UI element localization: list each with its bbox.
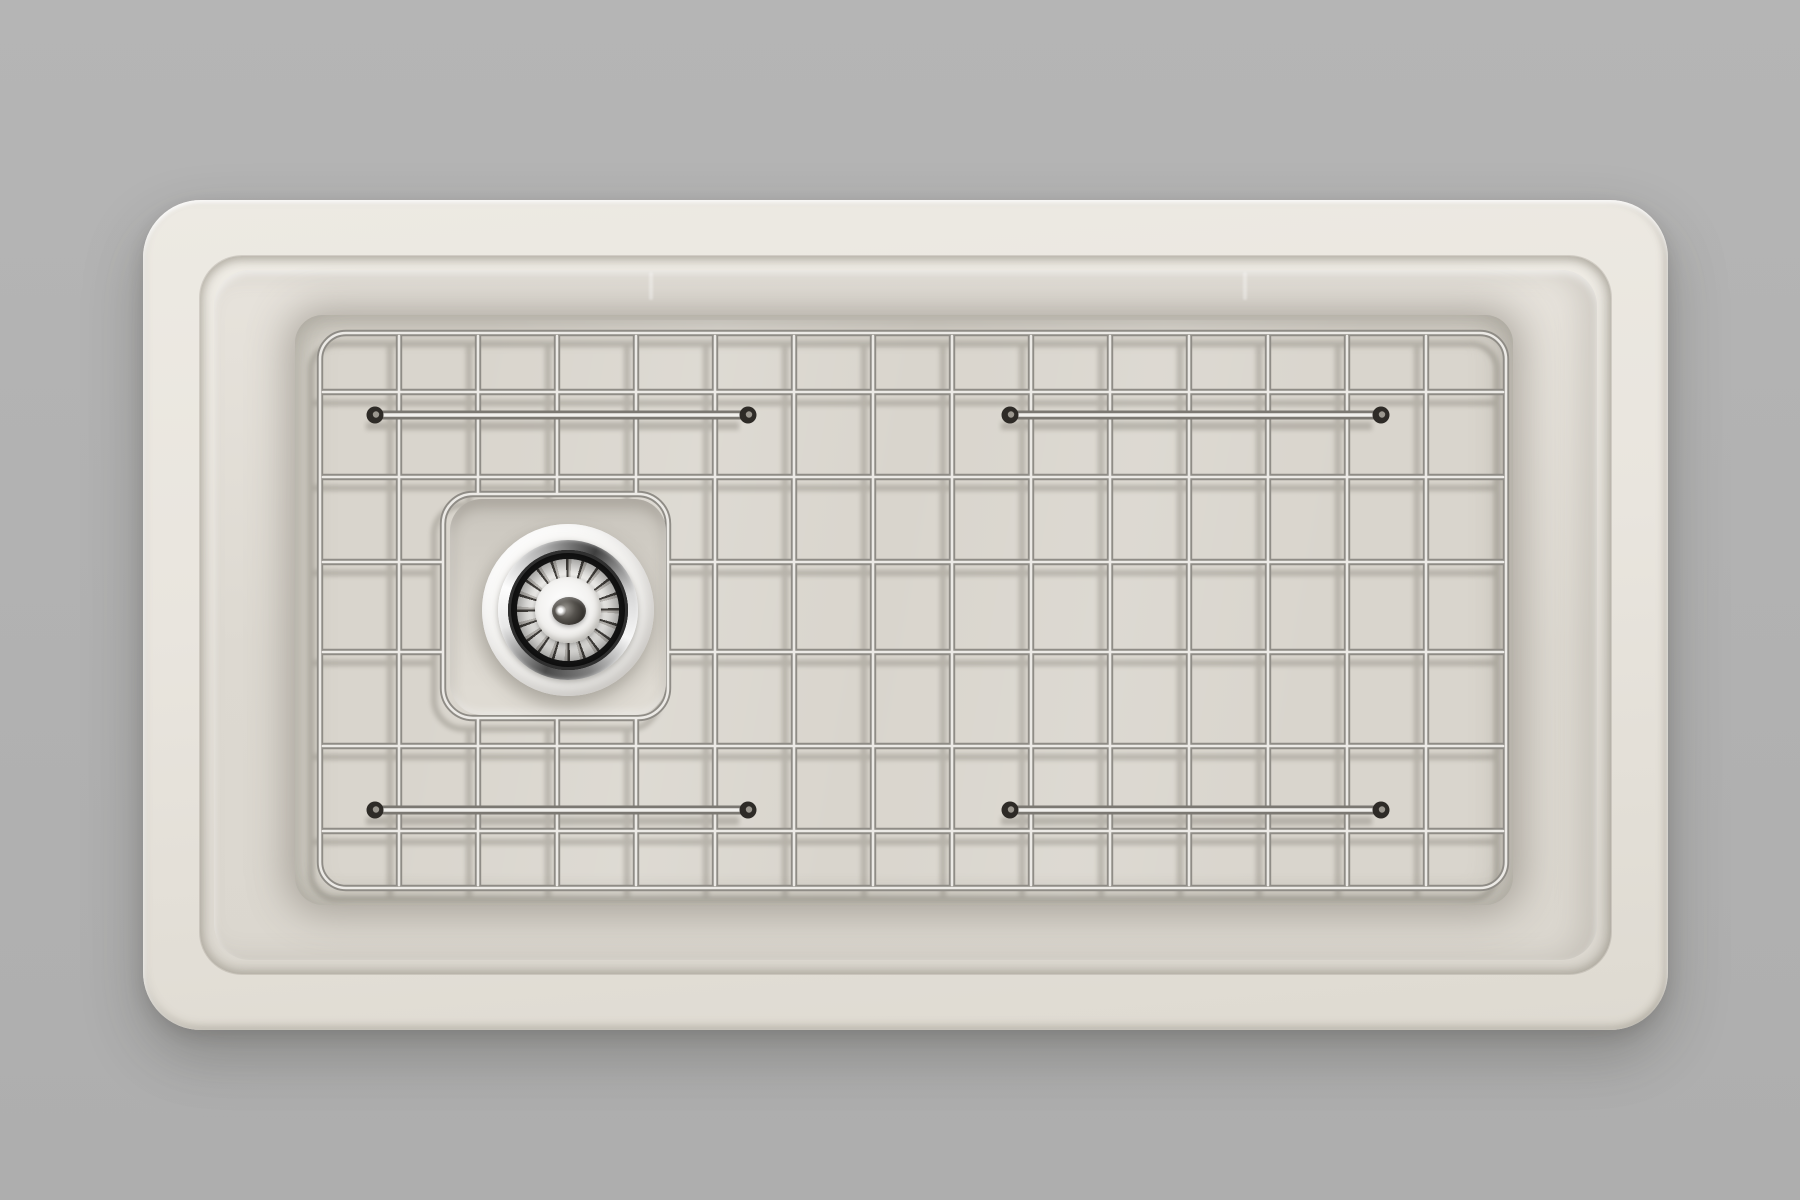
strainer-knob xyxy=(552,597,586,625)
wall-reflection-streak xyxy=(649,272,653,300)
product-photo-stage xyxy=(0,0,1800,1200)
knob-highlight xyxy=(555,605,566,616)
wall-reflection-streak xyxy=(1243,272,1247,300)
